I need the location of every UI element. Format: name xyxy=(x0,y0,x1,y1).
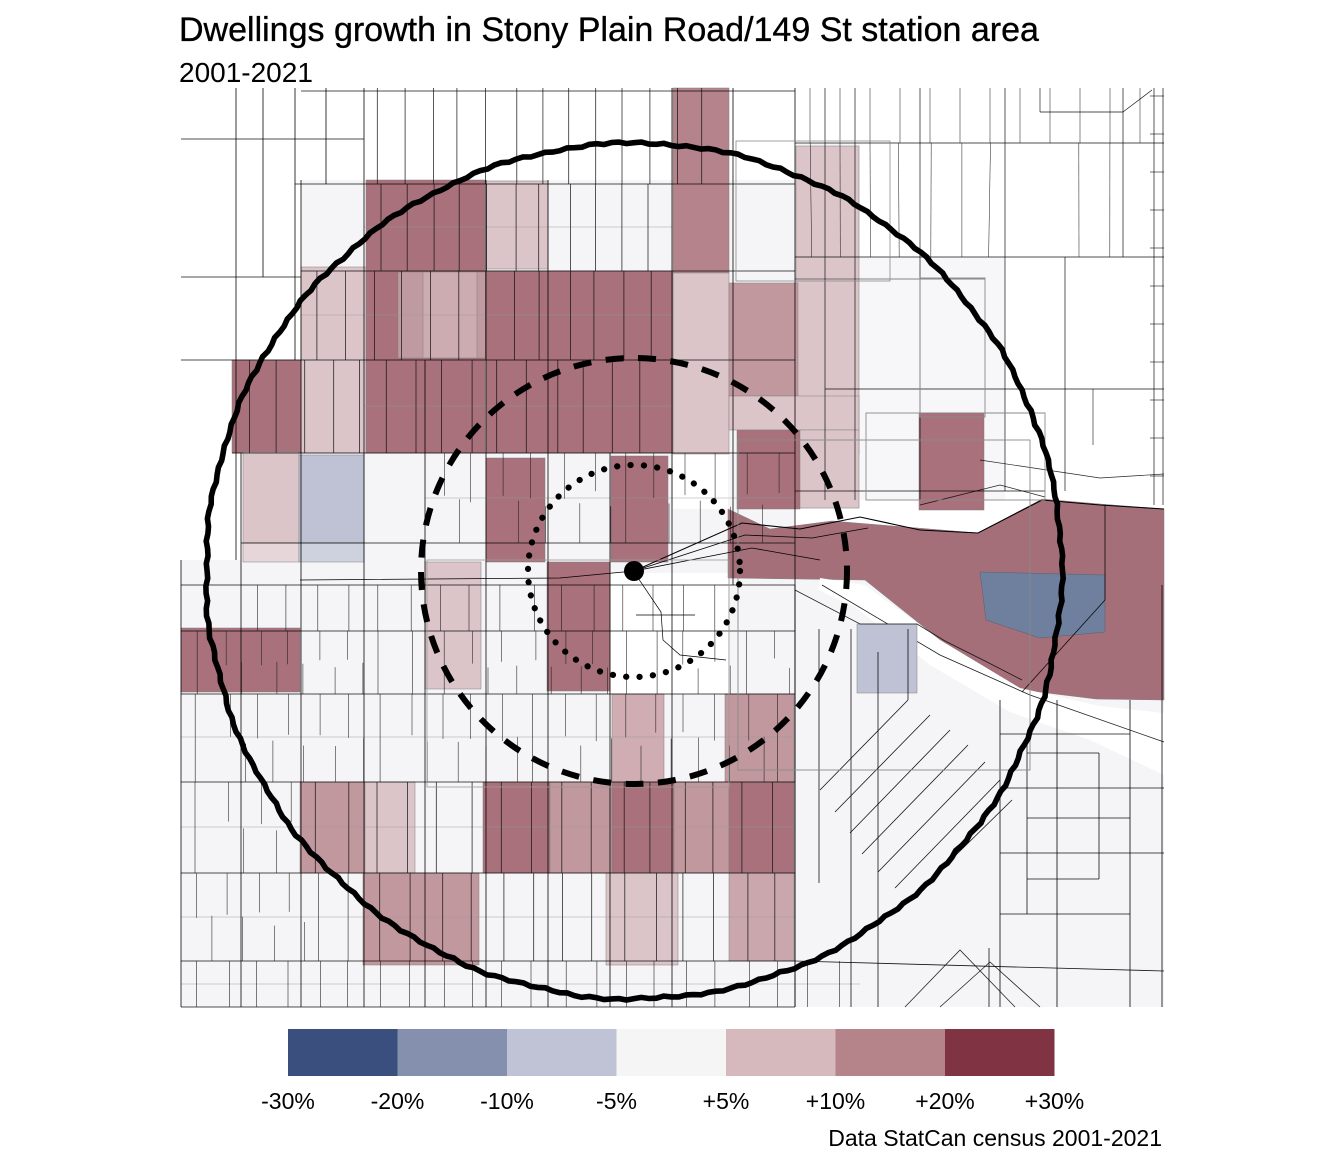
svg-text:-10%: -10% xyxy=(480,1088,534,1114)
svg-text:Dwellings growth in Stony Plai: Dwellings growth in Stony Plain Road/149… xyxy=(179,11,1039,49)
svg-text:+5%: +5% xyxy=(703,1088,750,1114)
svg-text:+30%: +30% xyxy=(1025,1088,1084,1114)
svg-text:-20%: -20% xyxy=(371,1088,425,1114)
svg-text:-5%: -5% xyxy=(596,1088,637,1114)
svg-text:2001-2021: 2001-2021 xyxy=(179,57,313,88)
svg-text:+10%: +10% xyxy=(806,1088,865,1114)
svg-text:+20%: +20% xyxy=(915,1088,974,1114)
svg-text:-30%: -30% xyxy=(261,1088,315,1114)
svg-text:Data StatCan census 2001-2021: Data StatCan census 2001-2021 xyxy=(828,1125,1162,1151)
